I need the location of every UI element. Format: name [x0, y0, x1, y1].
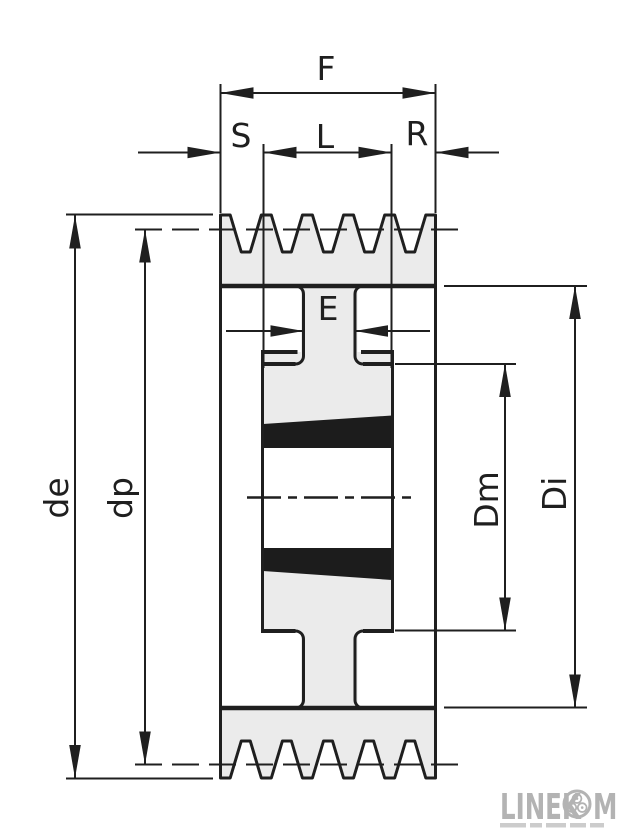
arrowhead-Dm-top — [499, 364, 511, 397]
badge-roller-dot-1 — [571, 806, 574, 809]
label-E: E — [318, 289, 339, 328]
bottom-rim-fill — [221, 708, 436, 778]
arrowhead-Di-top — [569, 286, 581, 319]
arrowhead-S — [188, 147, 221, 159]
label-S: S — [231, 116, 252, 155]
arrowhead-dp-top — [139, 230, 151, 263]
logo-tagline-illegible — [500, 823, 604, 828]
arrowhead-F-left — [221, 87, 254, 99]
pulley-cross-section-drawing: F S L R E de dp Dm Di LINEK M — [0, 0, 644, 839]
arrowhead-Di-bottom — [569, 675, 581, 708]
label-R: R — [406, 114, 429, 153]
tagline-block-4 — [590, 823, 604, 828]
arrowhead-L-right — [359, 147, 392, 159]
technical-drawing-page: F S L R E de dp Dm Di LINEK M — [0, 0, 644, 839]
arrowhead-F-right — [403, 87, 436, 99]
badge-roller-dot-2 — [581, 806, 584, 809]
arrowhead-L-left — [264, 147, 297, 159]
linekom-logo: LINEK M — [500, 786, 617, 828]
label-de: de — [37, 477, 76, 518]
tagline-block-0 — [500, 823, 526, 828]
arrowhead-dp-bottom — [139, 732, 151, 765]
arrowhead-de-bottom — [69, 745, 81, 778]
arrowhead-E-right — [355, 325, 388, 337]
arrowhead-de-top — [69, 216, 81, 249]
label-dp: dp — [101, 477, 140, 519]
arrowhead-E-left — [271, 325, 304, 337]
tagline-block-3 — [570, 823, 586, 828]
label-Dm: Dm — [467, 471, 506, 529]
tagline-block-2 — [546, 823, 566, 828]
tagline-block-1 — [530, 823, 542, 828]
badge-roller-dot-0 — [576, 797, 579, 800]
logo-text-right: M — [593, 786, 617, 828]
label-L: L — [316, 117, 335, 156]
label-F: F — [317, 49, 336, 88]
label-Di: Di — [535, 477, 574, 512]
arrowhead-Dm-bottom — [499, 598, 511, 631]
arrowhead-R — [436, 147, 469, 159]
